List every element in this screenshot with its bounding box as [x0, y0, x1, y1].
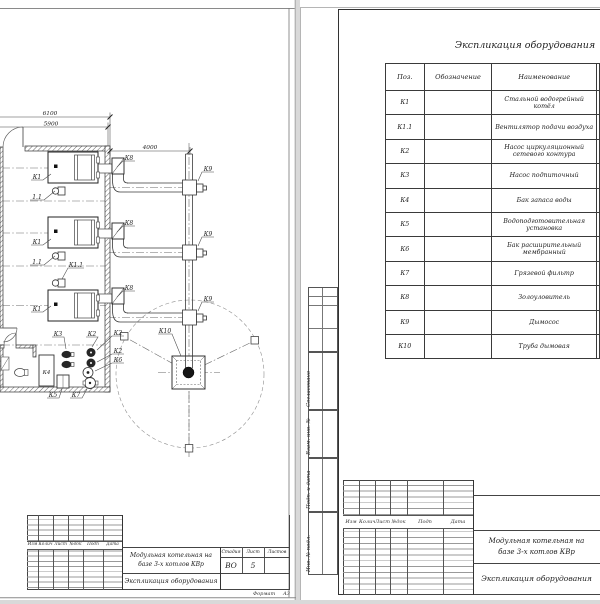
label-fan-2: 1.1 — [32, 259, 42, 266]
header-pos: Поз. — [386, 64, 425, 91]
right-title-block: Изм Колич Лист №док Подп Дата Модульная … — [343, 480, 600, 595]
label-k5: К5 — [48, 392, 58, 399]
label-k4: К4 — [42, 370, 51, 376]
stamp-soglasovano: Согласовано — [308, 352, 338, 410]
margin-grid — [308, 287, 338, 352]
boiler-units — [48, 152, 100, 321]
label-k2-right-2: К2 — [113, 348, 123, 355]
label-k8-3: К8 — [124, 285, 134, 292]
sheet-number: 5 — [242, 558, 264, 573]
stamp-podp-data: Подп. и дата — [308, 458, 338, 512]
sheets-label: Листов — [264, 547, 290, 557]
left-title-block: Изм Колич Лист №док Подп Дата Модульная … — [27, 515, 290, 590]
door-swings — [3, 127, 23, 345]
table-row: К1Стальной водогрейный котёл — [386, 91, 600, 115]
smoke-exhauster-units — [183, 180, 207, 325]
dim-6100: 6100 — [43, 111, 58, 117]
label-k8-2: К8 — [124, 220, 134, 227]
label-k3: К3 — [53, 331, 63, 338]
label-k1_1: К1.1 — [68, 262, 83, 269]
page-edge-top — [300, 7, 600, 8]
sheet-frame-lines — [0, 0, 296, 600]
table-row: К7Грязевой фильтр — [386, 261, 600, 285]
label-k9-3: К9 — [203, 296, 213, 303]
pump-room-equipment — [1, 348, 98, 389]
label-k6: К6 — [113, 357, 123, 364]
label-k2-top: К2 — [87, 331, 97, 338]
sheet-label: Лист — [242, 547, 264, 557]
doc-title: Экспликация оборудования — [124, 575, 218, 588]
col-izm: Изм — [27, 542, 38, 549]
table-header-row: Поз. Обозначение Наименование — [386, 64, 600, 91]
project-title: Модульная котельная на базе 3-х котлов К… — [124, 548, 218, 572]
label-k8-1: К8 — [124, 155, 134, 162]
chimney-foundation — [172, 356, 205, 389]
dim-5900: 5900 — [44, 121, 59, 127]
floor-plan-svg: 6100 5900 4000 К1 К1 К1 1.1 1.1 К1.1 К8 … — [0, 0, 296, 600]
format-label: Формат — [253, 591, 275, 597]
equipment-table: Поз. Обозначение Наименование К1Стальной… — [385, 63, 600, 359]
dim-4000: 4000 — [142, 145, 158, 151]
table-row: К5Водоподготовительная установка — [386, 212, 600, 236]
frame-top — [338, 9, 600, 10]
format-value: А3 — [283, 591, 290, 597]
col-podp: Подп — [83, 542, 103, 549]
left-sheet-floor-plan: 6100 5900 4000 К1 К1 К1 1.1 1.1 К1.1 К8 … — [0, 0, 296, 600]
label-k10: К10 — [158, 328, 171, 335]
revision-grid — [27, 515, 122, 590]
label-k1-1: К1 — [32, 174, 41, 181]
stamp-inv-podl: Инв. № подл. — [308, 512, 338, 575]
project-title: Модульная котельная на базе 3-х котлов К… — [475, 532, 598, 561]
stage-value: ВО — [220, 558, 242, 573]
doc-title: Экспликация оборудования — [475, 566, 598, 591]
header-oboznachenie: Обозначение — [424, 64, 492, 91]
label-k1-2: К1 — [32, 239, 41, 246]
col-kolich: Колич — [38, 542, 53, 549]
frame-left — [338, 9, 339, 595]
col-ndok: №док — [68, 542, 83, 549]
label-k1-3: К1 — [32, 306, 41, 313]
table-row: К8Золоуловитель — [386, 286, 600, 310]
label-k9-1: К9 — [203, 166, 213, 173]
revision-header: Изм Колич Лист №док Подп Дата — [343, 515, 473, 529]
page-edge-left — [300, 7, 301, 600]
table-row: К4Бак запаса воды — [386, 188, 600, 212]
table-row: К3Насос подпиточный — [386, 164, 600, 188]
col-list: Лист — [53, 542, 68, 549]
equipment-table-title: Экспликация оборудования — [452, 40, 598, 51]
stamp-vzam-inv: Взам. инв. № — [308, 410, 338, 458]
label-k9-2: К9 — [203, 231, 213, 238]
revision-header: Изм Колич Лист №док Подп Дата — [27, 541, 122, 550]
col-data: Дата — [103, 542, 122, 549]
table-row: К9Дымосос — [386, 310, 600, 334]
stage-label: Стадия — [220, 547, 242, 557]
right-sheet-equipment-list: Экспликация оборудования Поз. Обозначени… — [300, 0, 600, 600]
table-row: К10Труба дымовая — [386, 334, 600, 358]
header-naimenovanie: Наименование — [492, 64, 597, 91]
label-k7: К7 — [71, 392, 81, 399]
table-row: К1.1Вентилятор подачи воздуха — [386, 115, 600, 139]
label-k2-right-1: К2 — [113, 330, 123, 337]
label-fan-1: 1.1 — [32, 194, 42, 201]
table-row: К6Бак расширительный мембранный — [386, 237, 600, 261]
table-row: К2Насос циркуляционный сетевого контура — [386, 139, 600, 163]
revision-grid — [343, 480, 473, 595]
